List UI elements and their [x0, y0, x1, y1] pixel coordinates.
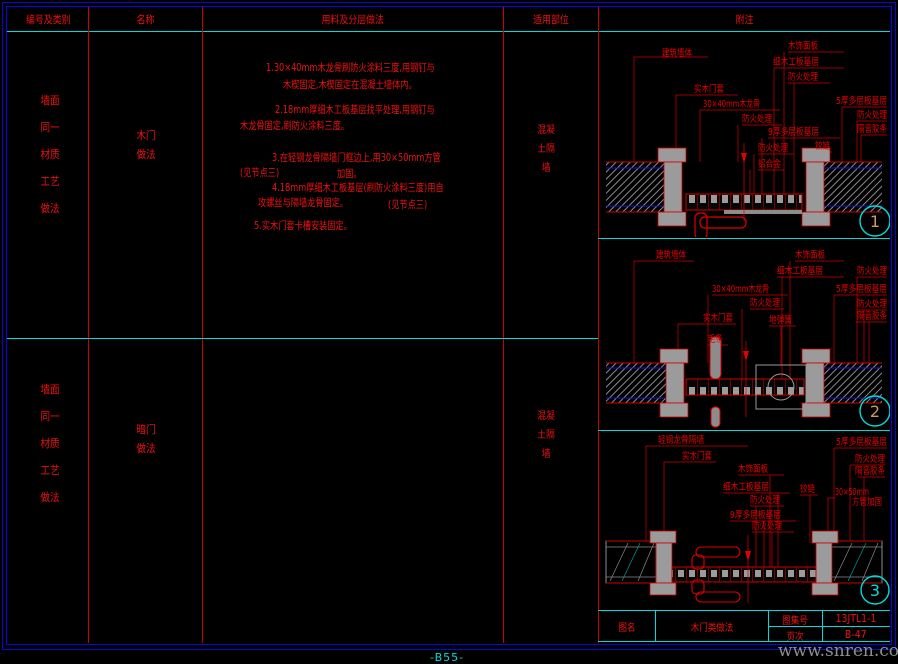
detail-label: 细木工板基层 [723, 481, 769, 493]
column-header-text: 适用部位 [533, 12, 569, 27]
column-header-text: 名称 [136, 12, 154, 27]
row1-location: 混凝 土隔 墙 [532, 121, 560, 178]
detail-label: 建筑墙体 [662, 47, 692, 59]
detail-label: 细木工板基层 [773, 56, 819, 68]
titleblock-page-value: B-47 [822, 628, 890, 641]
detail-label: 防火处理 [752, 520, 782, 532]
note-line: 木楔固定,木楔固定在混凝土墙体内。 [283, 77, 417, 92]
detail-label: 地弹簧 [769, 314, 792, 326]
grid-line [503, 7, 504, 643]
note-line: (见节点三) [240, 165, 279, 180]
titleblock-name-value: 木门类做法 [655, 619, 768, 634]
detail-label: 9厚多层板基层 [768, 126, 819, 138]
detail-label: 5厚多层板基层 [836, 283, 887, 295]
detail-label: 隔音胶条 [855, 465, 885, 477]
note-line: 加固。 [337, 166, 362, 181]
detail-label: 实木门套 [703, 312, 733, 324]
titleblock-atlas-label: 图集号 [768, 612, 822, 627]
detail-label: 30×40mm木龙骨 [703, 98, 760, 110]
detail-label: 木饰面板 [788, 40, 818, 52]
column-header-text: 用料及分层做法 [321, 12, 383, 27]
detail-label: 毛条 [708, 333, 723, 345]
detail-label: 防火处理 [742, 113, 772, 125]
row2-category: 墙面 同一 材质 工艺 做法 [36, 376, 64, 511]
titleblock-atlas-value: 13JTL1-1 [822, 612, 890, 625]
row1-category: 墙面 同一 材质 工艺 做法 [36, 87, 64, 222]
column-header-remarks: 附注 [598, 8, 890, 31]
detail-label: 防火处理 [857, 298, 887, 310]
column-header-text: 编号及类别 [26, 12, 71, 27]
door-leaf [686, 379, 804, 395]
detail-label: 防火处理 [750, 297, 780, 309]
detail-drawing-2: 建筑墙体木饰面板细木工板基层防火处理30×40mm木龙骨5厚多层板基层防火处理防… [598, 239, 890, 429]
detail-label: 木饰面板 [795, 249, 825, 261]
column-header-id: 编号及类别 [8, 8, 88, 31]
watermark: www.snren.com [778, 641, 898, 661]
detail-label: 木饰面板 [738, 463, 768, 475]
drawing-sheet: 编号及类别 名称 用料及分层做法 适用部位 附注 墙面 同一 材质 工艺 做法 … [0, 0, 898, 664]
detail-label: 防火处理 [788, 71, 818, 83]
detail-label: 建筑墙体 [656, 249, 686, 261]
detail-labels: 轻钢龙骨隔墙5厚多层板基层实木门套防火处理隔音胶条木饰面板细木工板基层铰链30×… [658, 434, 887, 532]
titleblock-line [598, 610, 890, 611]
detail-label: 隔音胶条 [857, 123, 887, 135]
door-handle [695, 213, 746, 237]
detail-label: 5厚多层板基层 [836, 95, 887, 107]
row2-location: 混凝 土隔 墙 [532, 407, 560, 464]
note-line: 5.实木门套卡槽安装固定。 [254, 218, 352, 233]
page-number: -B55- [430, 651, 464, 664]
detail-label: 铰链 [815, 140, 830, 152]
detail-number: 1 [870, 212, 880, 231]
note-line: (见节点三) [388, 197, 427, 212]
row1-name: 木门 做法 [132, 126, 160, 164]
detail-label: 9厚多层板基层 [730, 509, 781, 521]
note-line: 木龙骨固定,刷防火涂料三度。 [240, 118, 349, 133]
row2-name: 暗门 做法 [132, 420, 160, 458]
detail-label: 防火处理 [857, 109, 887, 121]
detail-labels: 建筑墙体木饰面板细木工板基层防火处理实木门套30×40mm木龙骨防火处理9厚多层… [662, 40, 887, 170]
detail-label: 防火处理 [750, 494, 780, 506]
column-header-location: 适用部位 [503, 8, 598, 31]
grid-line [88, 7, 89, 643]
detail-label: 实木门套 [682, 450, 712, 462]
detail-label: 方管加固 [852, 496, 882, 508]
grid-line [7, 338, 598, 339]
detail-label: 隔音胶条 [857, 310, 887, 322]
detail-labels: 建筑墙体木饰面板细木工板基层防火处理30×40mm木龙骨5厚多层板基层防火处理防… [656, 249, 887, 345]
detail-label: 实木门套 [694, 83, 724, 95]
detail-label: 30×40mm木龙骨 [712, 283, 769, 295]
aluminium-threshold [724, 210, 802, 214]
centerline-arrow [741, 153, 747, 163]
column-header-materials: 用料及分层做法 [202, 8, 503, 31]
detail-label: 防火处理 [758, 142, 788, 154]
detail-drawing-1: 建筑墙体木饰面板细木工板基层防火处理实木门套30×40mm木龙骨防火处理9厚多层… [598, 31, 890, 237]
detail-label: 5厚多层板基层 [836, 436, 887, 448]
titleblock-name-label: 图名 [598, 619, 655, 634]
centerline-arrow [743, 351, 749, 361]
note-line: 攻螺丝与隔墙龙骨固定。 [258, 195, 348, 210]
detail-number: 3 [870, 581, 880, 600]
column-header-name: 名称 [88, 8, 202, 31]
detail-label: 防火处理 [857, 265, 887, 277]
note-line: 1.30×40mm木龙骨刷防火涂料三度,用钢钉与 [266, 60, 435, 75]
note-line: 2.18mm厚细木工板基层找平处理,用钢钉与 [275, 102, 435, 117]
detail-drawing-3: 轻钢龙骨隔墙5厚多层板基层实木门套防火处理隔音胶条木饰面板细木工板基层铰链30×… [598, 431, 890, 610]
note-line: 3.在轻钢龙骨隔墙门框边上,用30×50mm方管 [272, 150, 441, 165]
detail-label: 细木工板基层 [777, 265, 823, 277]
grid-line [202, 7, 203, 643]
detail-label: 铝合金 [758, 158, 781, 170]
note-line: 4.18mm厚细木工板基层(刷防火涂料三度)用自 [272, 180, 444, 195]
centerline-arrow [745, 551, 751, 561]
detail-label: 防火处理 [855, 453, 885, 465]
detail-label: 轻钢龙骨隔墙 [658, 434, 704, 446]
detail-label: 铰链 [800, 483, 815, 495]
detail-number: 2 [870, 402, 880, 421]
column-header-text: 附注 [735, 12, 753, 27]
door-leaf [672, 567, 816, 582]
